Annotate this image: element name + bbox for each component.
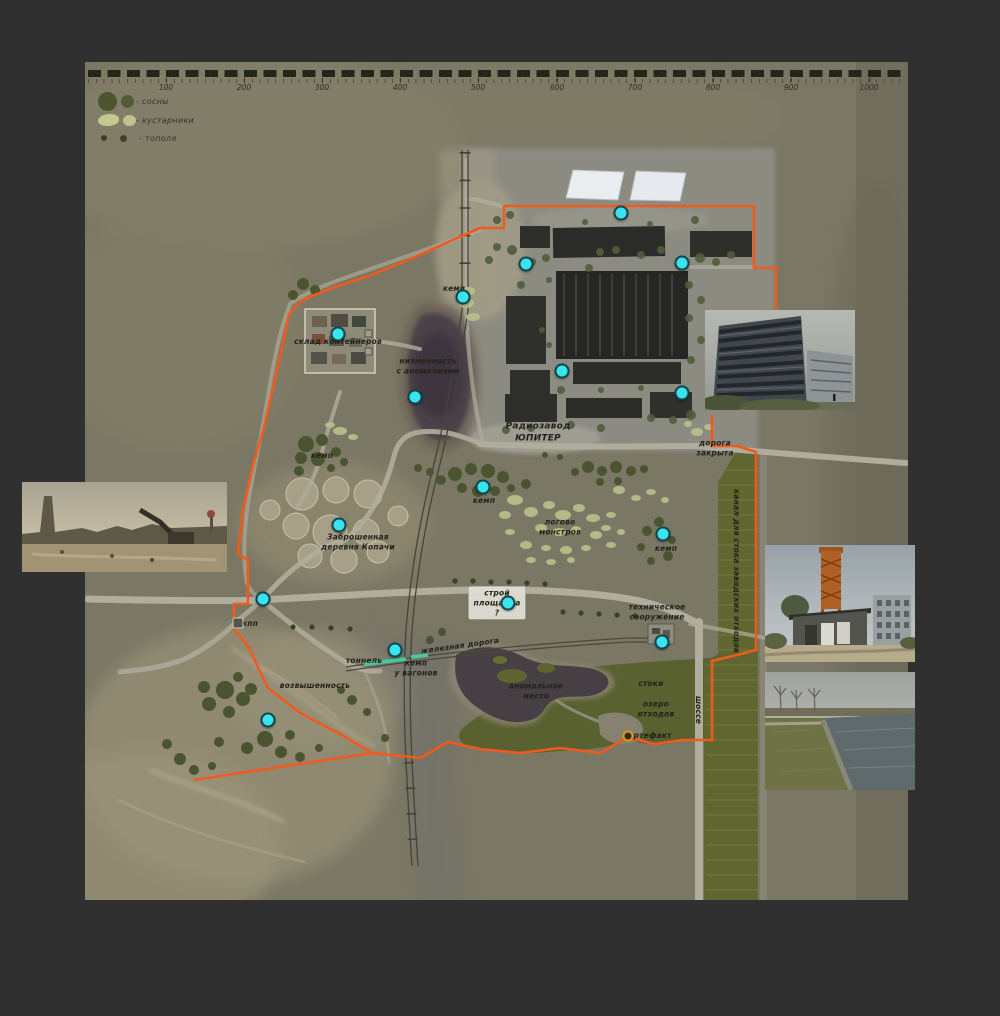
poi-marker[interactable] [331,327,346,342]
map-label: кпп [242,619,258,629]
scale-tick-800: 800 [706,83,720,92]
map-canvas: 1002003004005006007008009001000 - сосны-… [0,0,1000,1016]
map-label: возвышенность [280,681,351,691]
scale-tick-200: 200 [237,83,251,92]
poi-marker[interactable] [675,386,690,401]
map-label: аномальное место [509,681,563,701]
legend-item-shrubs: - кустарники [98,111,194,129]
poi-marker[interactable] [519,257,534,272]
map-label: Радиозавод ЮПИТЕР [506,421,571,444]
poi-marker[interactable] [675,256,690,271]
map-label: тоннель [346,656,383,666]
poi-marker[interactable] [476,480,491,495]
scale-tick-900: 900 [784,83,798,92]
legend-label: - тополя [139,134,176,143]
map-label: Заброшенная деревня Копачи [321,532,395,552]
factory-building-photo [705,310,855,410]
legend-label: - сосны [136,97,169,106]
scale-tick-400: 400 [393,83,407,92]
scale-tick-600: 600 [550,83,564,92]
map-label: логово монстров [539,517,581,537]
canal-embankment-photo [765,672,915,790]
pines-icon [98,92,136,111]
legend-label: - кустарники [136,116,194,125]
scale-bar-minor-ticks [88,79,905,83]
map-label: техническое сооружение [629,602,686,622]
scale-tick-1000: 1000 [859,83,878,92]
shrubs-icon [98,114,136,126]
map-label: канал для стока заводских отходов [731,489,741,653]
map-label: кемп у вагонов [394,658,437,678]
map-label: кемп [473,496,495,506]
poi-marker[interactable] [261,713,276,728]
rusty-tower-photo [765,545,915,662]
map-label: артефакт [628,731,671,741]
poplars-icon [98,135,139,142]
scale-tick-300: 300 [315,83,329,92]
map-label: шоссе [693,696,703,724]
scale-tick-700: 700 [628,83,642,92]
poi-marker[interactable] [456,290,471,305]
poi-marker[interactable] [614,206,629,221]
map-label: стоки [638,679,663,689]
poi-marker[interactable] [388,643,403,658]
map-label: кемп [655,544,677,554]
legend-item-poplars: - тополя [98,129,176,147]
map-label: строй площадка ? [469,586,526,619]
map-label: низменность с аномалиями [397,356,460,376]
scale-tick-500: 500 [471,83,485,92]
map-label: кемп [311,451,333,461]
poi-marker[interactable] [655,635,670,650]
poi-marker[interactable] [408,390,423,405]
poi-marker[interactable] [555,364,570,379]
map-label: озеро отходов [638,699,675,719]
scale-tick-100: 100 [159,83,173,92]
legend-item-pines: - сосны [98,92,169,110]
poi-marker[interactable] [256,592,271,607]
poi-marker[interactable] [501,596,516,611]
map-label: дорога закрыта [696,438,733,458]
excavator-ruins-photo [22,482,227,572]
scale-bar-line [88,70,905,77]
poi-marker[interactable] [332,518,347,533]
artifact-marker[interactable] [623,731,634,742]
poi-marker[interactable] [656,527,671,542]
checkpoint-icon [233,618,244,629]
